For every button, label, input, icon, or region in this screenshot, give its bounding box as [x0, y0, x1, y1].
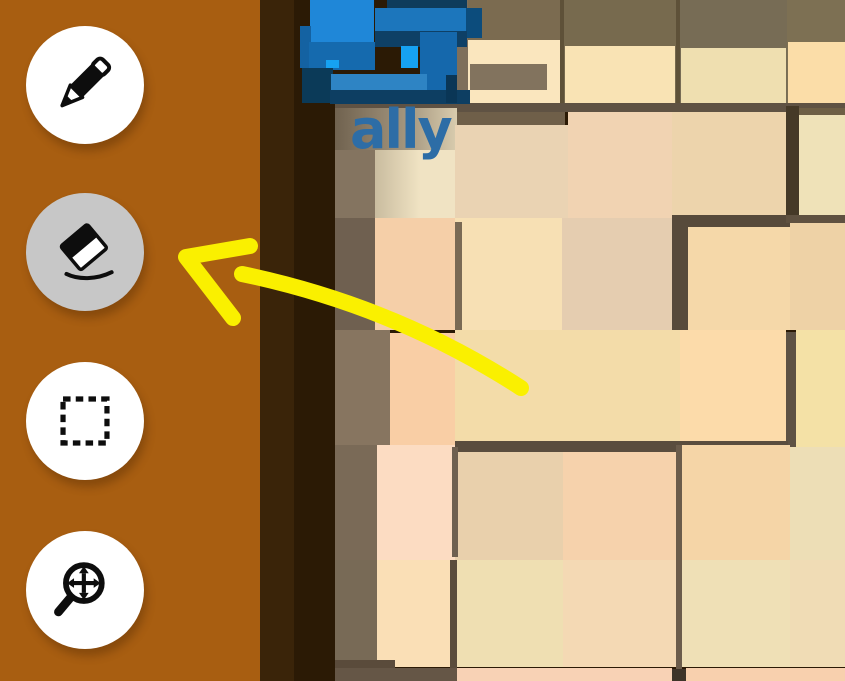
- player-voxel: [302, 68, 333, 103]
- player-voxel: [309, 42, 375, 70]
- voxel-block: [457, 560, 563, 667]
- drawing-overlay-app: ally: [0, 0, 845, 681]
- voxel-block: [377, 560, 455, 667]
- voxel-block: [682, 445, 790, 560]
- voxel-block: [568, 112, 672, 218]
- player-name-label: ally: [350, 98, 451, 161]
- toolbar-sidebar: [0, 0, 260, 681]
- voxel-block: [563, 560, 676, 667]
- voxel-block: [672, 112, 786, 218]
- voxel-block: [260, 0, 294, 681]
- voxel-block: [672, 215, 688, 333]
- voxel-block: [455, 125, 568, 218]
- voxel-block: [335, 445, 377, 560]
- voxel-block: [672, 669, 686, 681]
- voxel-block: [457, 668, 672, 681]
- player-voxel: [466, 8, 482, 38]
- voxel-block: [790, 223, 845, 330]
- voxel-block: [790, 560, 845, 667]
- voxel-block: [377, 445, 455, 560]
- voxel-block: [565, 46, 675, 103]
- voxel-block: [799, 108, 845, 115]
- voxel-block: [390, 333, 455, 445]
- player-voxel: [375, 8, 469, 32]
- player-voxel: [326, 60, 339, 68]
- voxel-block: [563, 452, 680, 560]
- zoom-pan-icon: [48, 553, 122, 627]
- voxel-block: [799, 115, 845, 218]
- voxel-block: [455, 452, 563, 560]
- voxel-block: [676, 215, 793, 227]
- tool-button-eraser[interactable]: [26, 193, 144, 311]
- voxel-block: [452, 447, 458, 557]
- voxel-block: [335, 668, 457, 681]
- voxel-block: [796, 330, 845, 447]
- voxel-block: [455, 222, 462, 330]
- voxel-block: [686, 668, 845, 681]
- voxel-block: [455, 218, 562, 330]
- voxel-block: [560, 0, 564, 103]
- voxel-block: [470, 64, 547, 90]
- voxel-block: [335, 560, 377, 667]
- voxel-block: [375, 218, 455, 330]
- voxel-block: [335, 218, 375, 330]
- eraser-icon: [48, 215, 122, 289]
- tool-button-pencil[interactable]: [26, 26, 144, 144]
- voxel-block: [688, 227, 790, 330]
- voxel-block: [681, 48, 786, 103]
- voxel-block: [786, 332, 796, 452]
- pencil-icon: [48, 48, 122, 122]
- tool-button-select[interactable]: [26, 362, 144, 480]
- voxel-block: [450, 560, 457, 668]
- voxel-block: [788, 42, 845, 106]
- player-voxel: [401, 46, 418, 68]
- voxel-block: [562, 218, 672, 330]
- voxel-block: [786, 106, 799, 222]
- voxel-block: [790, 447, 845, 560]
- tool-button-zoom-pan[interactable]: [26, 531, 144, 649]
- voxel-block: [335, 330, 390, 445]
- voxel-block: [455, 112, 565, 125]
- voxel-block: [680, 330, 786, 444]
- voxel-block: [786, 215, 845, 223]
- voxel-block: [455, 330, 680, 445]
- player-voxel: [387, 0, 467, 8]
- player-voxel: [310, 0, 374, 44]
- voxel-block: [682, 560, 790, 667]
- selection-box-icon: [48, 384, 122, 458]
- voxel-block: [676, 0, 680, 103]
